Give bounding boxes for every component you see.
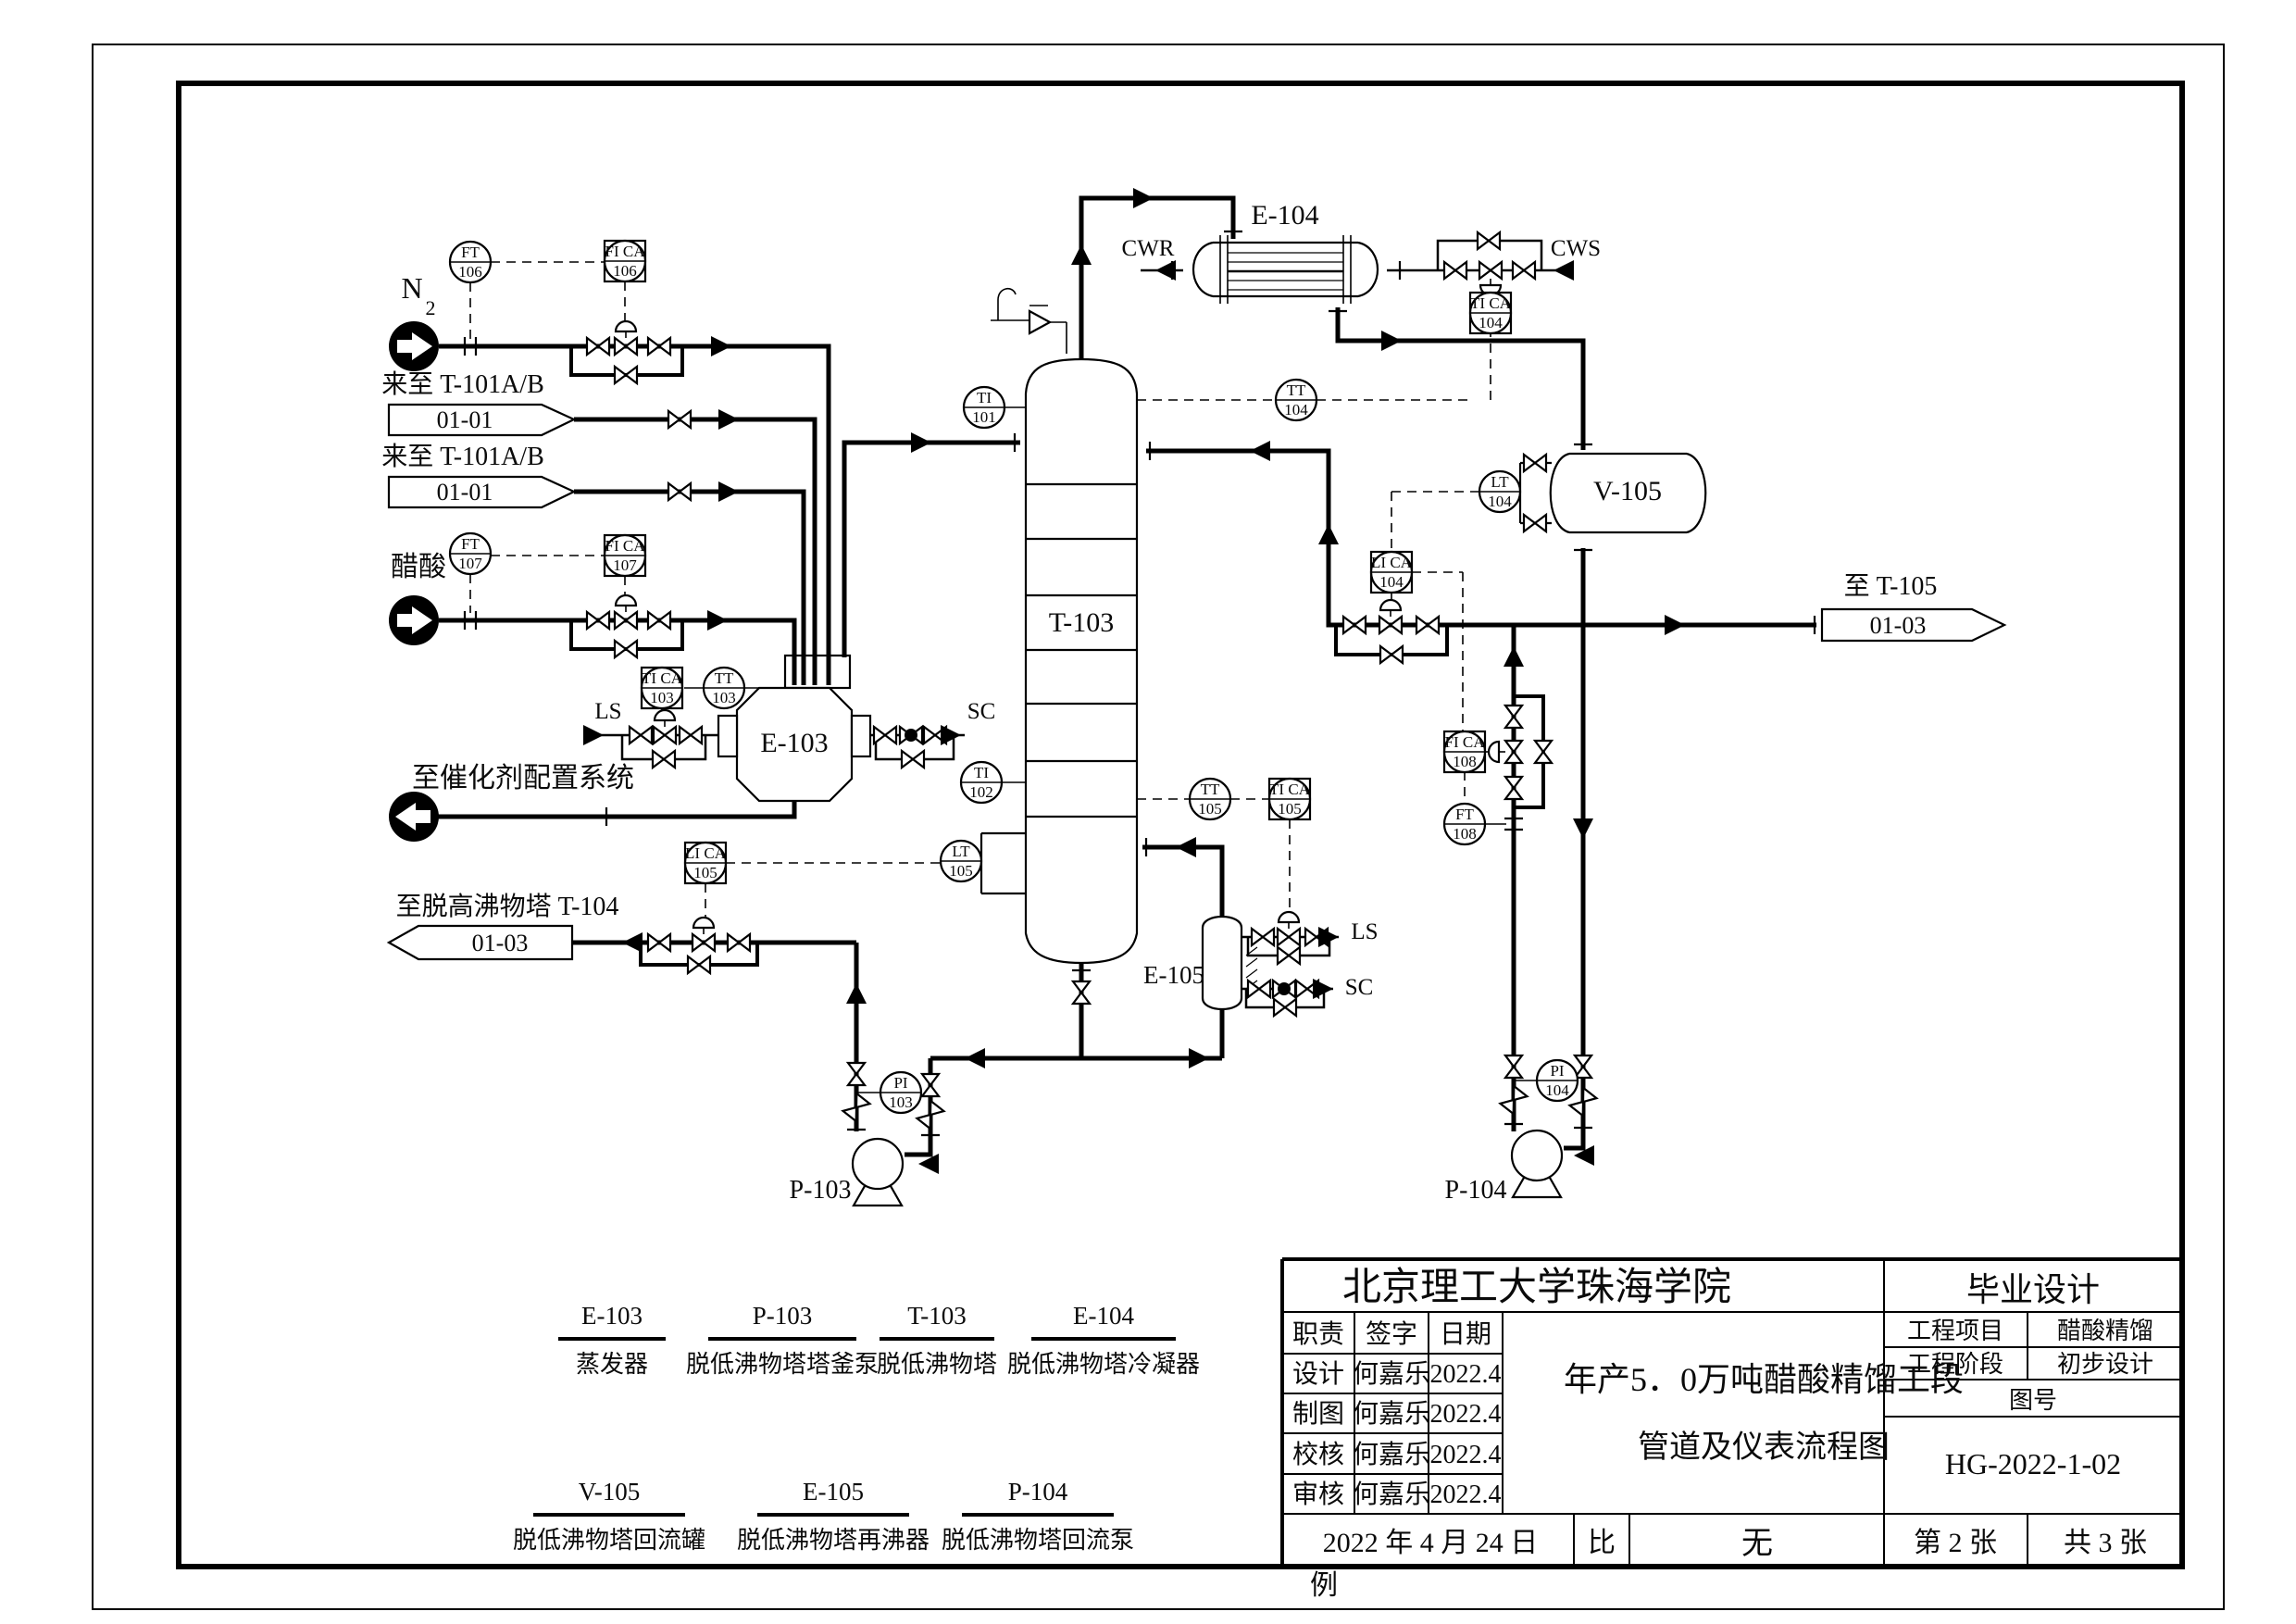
svg-text:脱低沸物塔冷凝器: 脱低沸物塔冷凝器 [1007, 1351, 1200, 1378]
svg-text:校核: 校核 [1292, 1440, 1344, 1469]
label-20: P-104 [1445, 1176, 1507, 1205]
instrument-TT-105: TT105 [1190, 779, 1230, 819]
equipment-item-E-104: E-104脱低沸物塔冷凝器 [1007, 1302, 1200, 1378]
equipment-item-E-103: E-103蒸发器 [558, 1302, 666, 1378]
svg-text:105: 105 [1198, 800, 1222, 818]
svg-text:107: 107 [458, 555, 482, 572]
svg-text:107: 107 [613, 556, 637, 574]
stream-flag-in-2: 01-01 [389, 477, 574, 507]
equipment-list: E-103蒸发器P-103脱低沸物塔塔釜泵T-103脱低沸物塔E-104脱低沸物… [513, 1302, 1200, 1554]
label-15: E-104 [1251, 200, 1318, 231]
svg-text:E-105: E-105 [803, 1478, 864, 1505]
svg-text:105: 105 [949, 862, 973, 880]
bypass-fv108 [1514, 696, 1543, 807]
svg-text:醋酸精馏: 醋酸精馏 [2057, 1318, 2153, 1344]
pipe-reflux-header [1146, 451, 1816, 625]
drawing-title-1: 年产5．0万吨醋酸精馏工段 [1564, 1361, 1964, 1398]
label-11: SC [1345, 975, 1374, 1000]
svg-text:工程阶段: 工程阶段 [1907, 1351, 2003, 1378]
svg-text:FT: FT [461, 244, 480, 261]
svg-text:FI CA: FI CA [605, 243, 646, 260]
svg-text:P-103: P-103 [753, 1302, 813, 1330]
svg-text:审核: 审核 [1292, 1480, 1344, 1509]
svg-text:2022.4: 2022.4 [1430, 1400, 1502, 1429]
svg-text:FI CA: FI CA [1445, 733, 1486, 751]
label-4: 醋酸 [391, 552, 446, 582]
stream-flag-in-1: 01-01 [389, 405, 574, 435]
label-7: 至 T-105 [1844, 572, 1938, 601]
svg-text:102: 102 [969, 783, 993, 801]
svg-text:TI: TI [974, 764, 989, 781]
svg-text:2022.4: 2022.4 [1430, 1360, 1502, 1389]
label-18: E-105 [1143, 961, 1204, 989]
label-1: 2 [426, 296, 436, 319]
instrument-FICA-107: FI CA107 [605, 535, 645, 576]
label-19: P-103 [790, 1176, 852, 1205]
svg-text:103: 103 [889, 1093, 913, 1111]
svg-text:01-03: 01-03 [1870, 612, 1927, 639]
equipment-item-P-103: P-103脱低沸物塔塔釜泵 [686, 1302, 879, 1378]
source-acid [389, 595, 439, 645]
svg-text:何嘉乐: 何嘉乐 [1353, 1399, 1430, 1429]
svg-text:T-103: T-103 [907, 1302, 967, 1330]
svg-text:103: 103 [712, 689, 736, 706]
label-14: E-103 [760, 728, 828, 758]
instrument-FT-106: FT106 [450, 242, 491, 282]
label-10: LS [1351, 919, 1378, 944]
svg-text:01-03: 01-03 [472, 930, 529, 956]
svg-text:LT: LT [1491, 473, 1509, 491]
instrument-TT-103: TT103 [704, 668, 744, 708]
svg-text:设计: 设计 [1292, 1359, 1344, 1389]
sheet-number: 第 2 张 [1914, 1528, 1997, 1558]
instrument-TICA-103: TI CA103 [642, 668, 683, 708]
svg-text:FT: FT [461, 535, 480, 553]
drawing-date: 2022 年 4 月 24 日 [1323, 1528, 1539, 1558]
svg-text:何嘉乐: 何嘉乐 [1353, 1359, 1430, 1389]
instrument-LICA-105: LI CA105 [685, 843, 727, 883]
instrument-FT-107: FT107 [450, 533, 491, 574]
svg-text:LI CA: LI CA [685, 844, 727, 862]
svg-text:101: 101 [972, 408, 996, 426]
svg-text:制图: 制图 [1292, 1399, 1344, 1429]
pump-P-104 [1512, 1131, 1562, 1197]
svg-text:脱低沸物塔塔釜泵: 脱低沸物塔塔釜泵 [686, 1351, 879, 1378]
pipe-vapor-to-column [844, 443, 1020, 657]
svg-text:脱低沸物塔: 脱低沸物塔 [877, 1351, 997, 1378]
instrument-lines [470, 262, 1537, 1093]
pipe-e105-return [1142, 847, 1222, 921]
svg-text:2022.4: 2022.4 [1430, 1480, 1502, 1509]
label-12: CWR [1122, 236, 1175, 261]
label-13: CWS [1551, 236, 1601, 261]
svg-text:104: 104 [1379, 573, 1404, 591]
label-8: LS [594, 699, 621, 724]
instrument-TT-104: TT104 [1276, 380, 1316, 420]
pipe-e104-to-v105 [1338, 307, 1583, 450]
svg-text:蒸发器: 蒸发器 [576, 1351, 648, 1378]
svg-text:何嘉乐: 何嘉乐 [1353, 1440, 1430, 1469]
label-6: 至脱高沸物塔 T-104 [396, 892, 619, 921]
title-block: 北京理工大学珠海学院 毕业设计 职责 签字 日期 设计 何嘉乐 2022.4 制… [1282, 1259, 2182, 1601]
svg-text:初步设计: 初步设计 [2057, 1351, 2153, 1378]
svg-text:105: 105 [693, 864, 717, 881]
equipment-item-P-104: P-104脱低沸物塔回流泵 [942, 1478, 1134, 1554]
svg-text:FT: FT [1455, 806, 1474, 823]
svg-text:脱低沸物塔回流泵: 脱低沸物塔回流泵 [942, 1527, 1134, 1554]
pipe-feed2 [574, 492, 804, 685]
svg-text:比: 比 [1588, 1528, 1616, 1558]
bypass-reflux [1336, 625, 1447, 655]
pipe-overhead [1081, 198, 1233, 361]
svg-text:TT: TT [715, 669, 734, 687]
svg-text:职责: 职责 [1292, 1319, 1344, 1349]
project-type: 毕业设计 [1966, 1271, 2100, 1308]
instrument-LICA-104: LI CA104 [1371, 552, 1413, 593]
svg-text:脱低沸物塔回流罐: 脱低沸物塔回流罐 [513, 1527, 705, 1554]
lt105-taps [981, 833, 1026, 893]
svg-text:例: 例 [1310, 1570, 1338, 1601]
svg-text:TI CA: TI CA [1470, 294, 1512, 312]
svg-text:108: 108 [1453, 825, 1477, 843]
pump-P-103 [853, 1139, 903, 1206]
pipe-catalyst-out [435, 801, 794, 817]
svg-text:105: 105 [1278, 800, 1302, 818]
svg-text:104: 104 [1488, 493, 1512, 510]
label-17: V-105 [1593, 476, 1662, 506]
drawing-sheet: 01-01 01-01 01-03 01-03 E-103蒸发器P-103脱低沸… [0, 0, 2296, 1624]
svg-text:104: 104 [1545, 1081, 1569, 1099]
svg-text:E-103: E-103 [581, 1302, 643, 1330]
instrument-TICA-104: TI CA104 [1470, 293, 1512, 333]
svg-text:104: 104 [1284, 401, 1308, 418]
svg-text:V-105: V-105 [579, 1478, 641, 1505]
label-2: 来至 T-101A/B [381, 369, 544, 399]
stream-flags: 01-01 01-01 01-03 01-03 [389, 405, 2004, 959]
svg-text:何嘉乐: 何嘉乐 [1353, 1480, 1430, 1509]
svg-text:TT: TT [1201, 781, 1220, 798]
instrument-TI-102: TI102 [961, 762, 1002, 803]
equipment-item-V-105: V-105脱低沸物塔回流罐 [513, 1478, 705, 1554]
svg-text:LT: LT [952, 843, 970, 860]
instrument-LT-105: LT105 [941, 841, 981, 881]
svg-text:TI CA: TI CA [1269, 781, 1311, 798]
svg-text:01-01: 01-01 [437, 406, 493, 433]
svg-text:P-104: P-104 [1008, 1478, 1068, 1505]
svg-text:签字: 签字 [1366, 1319, 1417, 1349]
equipment-item-T-103: T-103脱低沸物塔 [877, 1302, 997, 1378]
svg-text:106: 106 [458, 263, 482, 281]
stream-flag-out-t105: 01-03 [1822, 609, 2004, 641]
svg-text:104: 104 [1479, 314, 1503, 331]
source-n2 [389, 321, 439, 371]
instrument-TI-101: TI101 [964, 387, 1004, 428]
svg-text:PI: PI [1550, 1062, 1564, 1080]
drawing-number: HG-2022-1-02 [1945, 1447, 2121, 1480]
condenser-E-104 [1193, 235, 1378, 304]
svg-text:TI CA: TI CA [642, 669, 683, 687]
instrument-LT-104: LT104 [1479, 471, 1520, 512]
vent-assembly [991, 289, 1067, 354]
scale-value: 无 [1741, 1527, 1773, 1561]
svg-text:日期: 日期 [1440, 1320, 1491, 1349]
instrument-FICA-108: FI CA108 [1444, 731, 1485, 772]
svg-text:工程项目: 工程项目 [1907, 1318, 2003, 1344]
svg-text:图号: 图号 [2009, 1387, 2057, 1414]
svg-text:LI CA: LI CA [1371, 554, 1413, 571]
svg-text:PI: PI [893, 1074, 907, 1092]
label-16: T-103 [1049, 607, 1115, 638]
svg-text:脱低沸物塔再沸器: 脱低沸物塔再沸器 [737, 1527, 930, 1554]
stream-flag-out-t104: 01-03 [389, 926, 572, 959]
svg-text:106: 106 [613, 262, 637, 280]
label-9: SC [967, 699, 996, 724]
equipment-item-E-105: E-105脱低沸物塔再沸器 [737, 1478, 930, 1554]
instrument-PI-104: PI104 [1537, 1060, 1578, 1101]
svg-text:TT: TT [1287, 381, 1306, 399]
label-0: N [401, 271, 422, 305]
drawing-title-2: 管道及仪表流程图 [1638, 1430, 1890, 1465]
svg-text:E-104: E-104 [1073, 1302, 1134, 1330]
dest-catalyst [389, 792, 439, 842]
instrument-FT-108: FT108 [1444, 804, 1485, 844]
label-3: 来至 T-101A/B [381, 442, 544, 471]
instrument-TICA-105: TI CA105 [1269, 779, 1311, 819]
pid-drawing: 01-01 01-01 01-03 01-03 E-103蒸发器P-103脱低沸… [0, 0, 2296, 1624]
svg-text:108: 108 [1453, 753, 1477, 770]
svg-text:2022.4: 2022.4 [1430, 1441, 1502, 1469]
column-T-103 [1026, 359, 1137, 963]
svg-text:TI: TI [977, 389, 992, 406]
university-name: 北京理工大学珠海学院 [1342, 1266, 1731, 1309]
svg-text:01-01: 01-01 [437, 479, 493, 506]
svg-text:FI CA: FI CA [605, 537, 646, 555]
instrument-PI-103: PI103 [880, 1072, 921, 1113]
instrument-FICA-106: FI CA106 [605, 241, 645, 281]
label-5: 至催化剂配置系统 [412, 763, 634, 793]
sheet-total: 共 3 张 [2064, 1528, 2147, 1558]
svg-text:103: 103 [650, 689, 674, 706]
